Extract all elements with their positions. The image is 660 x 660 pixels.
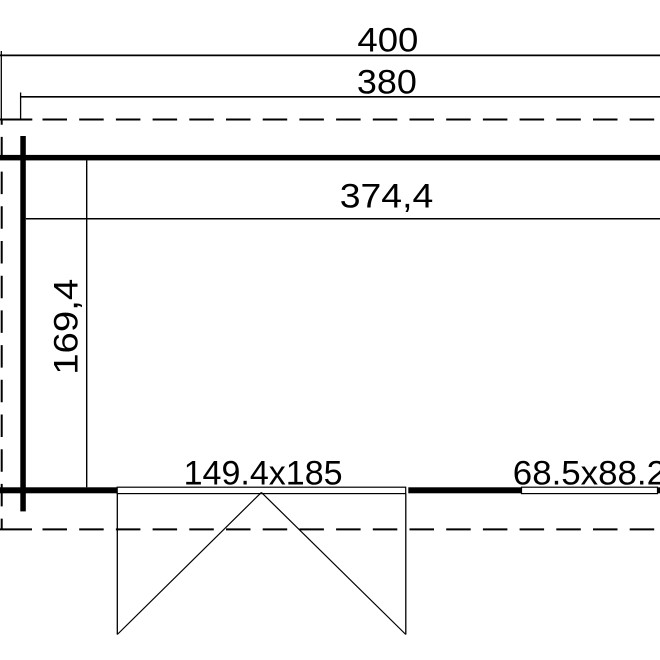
svg-text:380: 380 [357, 63, 417, 101]
svg-text:374,4: 374,4 [340, 177, 434, 215]
svg-text:169,4: 169,4 [48, 279, 86, 375]
svg-text:400: 400 [357, 22, 418, 60]
